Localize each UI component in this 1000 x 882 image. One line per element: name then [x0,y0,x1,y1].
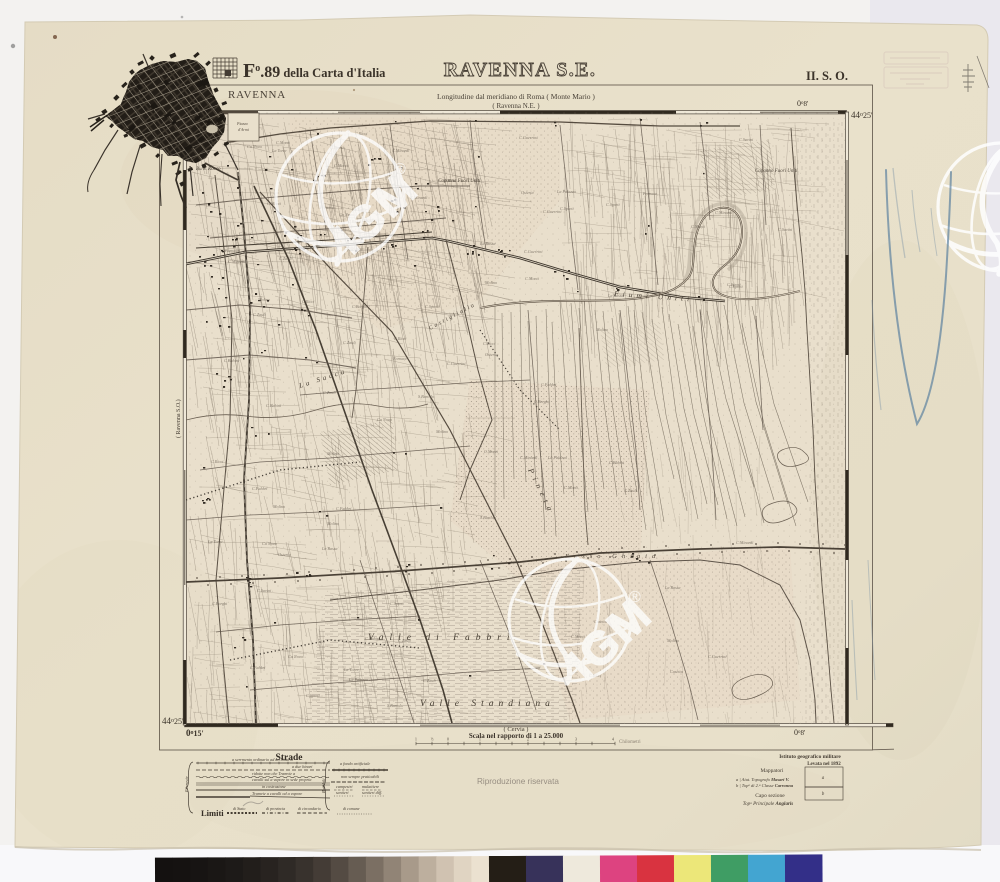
svg-text:Mappatori: Mappatori [761,768,784,774]
svg-text:C.Guerrini: C.Guerrini [708,654,727,659]
svg-text:C.Spreti: C.Spreti [729,284,744,289]
svg-text:di provincia: di provincia [266,806,285,811]
svg-text:Tramvie a cavalli od a vapore: Tramvie a cavalli od a vapore [252,791,302,796]
svg-text:S.Bartolo: S.Bartolo [480,515,496,520]
svg-text:C.Zauli: C.Zauli [253,312,267,317]
svg-text:C.Guerrini: C.Guerrini [524,249,543,254]
svg-text:campestri: campestri [336,784,353,789]
svg-text:C.Monti: C.Monti [525,276,540,281]
svg-text:sentieri diff.: sentieri diff. [362,790,382,795]
svg-text:C.Babini: C.Babini [266,403,282,408]
svg-text:C.Guerrini: C.Guerrini [447,361,466,366]
svg-text:C.Savini: C.Savini [778,227,793,232]
svg-text:C.Zauli: C.Zauli [279,256,293,261]
svg-text:Molino: Molino [272,504,285,509]
svg-text:Osteria: Osteria [278,552,291,557]
svg-text:½: ½ [431,738,434,742]
svg-text:di Stato: di Stato [233,806,245,811]
svg-text:Molino: Molino [484,280,497,285]
svg-text:Osteria: Osteria [485,352,498,357]
svg-text:di circondario: di circondario [298,806,321,811]
svg-text:a due binari: a due binari [292,764,313,769]
svg-text:Ca Nova: Ca Nova [288,654,303,659]
svg-text:C.Zauli: C.Zauli [423,678,437,683]
svg-text:non sempre praticabili: non sempre praticabili [341,774,380,779]
svg-text:Rotabili: Rotabili [321,778,326,794]
svg-text:1: 1 [415,738,417,742]
svg-text:2: 2 [527,738,529,742]
svg-text:Ferrovie: Ferrovie [184,776,189,793]
svg-text:Molino: Molino [326,521,339,526]
svg-text:Istituto geografico milita: Istituto geografico militare [779,754,841,760]
svg-text:C.Ricci: C.Ricci [483,341,496,346]
svg-text:Ca Nova: Ca Nova [377,417,392,422]
svg-text:0o15': 0o15' [186,728,204,738]
svg-text:C.Borghi: C.Borghi [534,399,550,404]
svg-text:Longitudine dal meridiano di R: Longitudine dal meridiano di Roma ( Mont… [437,92,595,101]
svg-text:C.Savini: C.Savini [739,137,754,142]
svg-text:3: 3 [575,738,577,742]
svg-text:Chilometri: Chilometri [619,740,641,745]
svg-text:Capo sezione: Capo sezione [755,793,785,799]
svg-text:Fornace: Fornace [242,250,257,255]
svg-text:4: 4 [612,738,614,742]
svg-text:C.Borghi: C.Borghi [212,601,228,606]
svg-text:1: 1 [479,738,481,742]
svg-text:®: ® [394,161,406,178]
svg-text:La Bassa: La Bassa [479,241,495,246]
svg-text:a fondo artificiale: a fondo artificiale [340,761,370,766]
svg-text:Fornace: Fornace [224,248,239,253]
svg-text:La Palazza: La Palazza [348,677,368,682]
svg-text:C.Fabbri: C.Fabbri [250,665,266,670]
svg-text:C.Minardi: C.Minardi [392,148,410,153]
svg-text:C.Minardi: C.Minardi [715,210,733,215]
svg-text:C.Fabbri: C.Fabbri [252,486,268,491]
svg-text:Limiti: Limiti [201,808,224,818]
svg-text:( Ravenna S.O.): ( Ravenna S.O.) [175,399,182,438]
svg-text:C.Ricci: C.Ricci [211,459,224,464]
svg-text:0: 0 [447,738,449,742]
svg-text:C.Monti: C.Monti [564,485,579,490]
svg-text:C.Babini: C.Babini [224,358,240,363]
svg-text:S.Bartolo: S.Bartolo [387,703,403,708]
svg-text:C.Monti: C.Monti [334,163,349,168]
svg-text:di comune: di comune [343,806,360,811]
svg-text:C.Zauli: C.Zauli [624,488,638,493]
svg-text:Valle Standiana: Valle Standiana [420,699,555,709]
svg-text:C.Monti: C.Monti [484,449,499,454]
svg-text:Valle di Fabbri: Valle di Fabbri [368,633,516,643]
svg-text:La Bassa: La Bassa [664,585,680,590]
svg-text:S.Bartolo: S.Bartolo [418,394,434,399]
svg-text:Osteria: Osteria [521,190,534,195]
svg-text:RAVENNA: RAVENNA [228,89,286,101]
svg-text:C.Minardi: C.Minardi [520,455,538,460]
svg-text:Molino: Molino [435,429,448,434]
svg-text:Molino: Molino [666,638,679,643]
svg-text:cavalli sul a vapore in sede p: cavalli sul a vapore in sede propria [252,777,311,782]
svg-text:b | Topo di 2.a Classe Carron: b | Topo di 2.a Classe Carronna [736,783,794,788]
svg-text:C.Minardi: C.Minardi [736,540,754,545]
svg-text:Ca Nova: Ca Nova [247,144,262,149]
svg-text:Piazza: Piazza [236,121,248,126]
svg-text:0o8': 0o8' [797,99,808,108]
svg-text:( Ravenna N.E. ): ( Ravenna N.E. ) [492,102,540,110]
svg-text:Fornace: Fornace [642,191,657,196]
svg-text:a | Aiut. Topografo Masari: a | Aiut. Topografo Masari V. [736,777,790,782]
svg-text:La Palazza: La Palazza [547,455,567,460]
svg-text:C.Borghi: C.Borghi [352,304,368,309]
svg-text:C.Fabbri: C.Fabbri [336,506,352,511]
svg-text:Molino: Molino [257,297,270,302]
svg-text:C.Monti: C.Monti [267,201,282,206]
svg-text:C.Monti: C.Monti [276,140,291,145]
svg-text:Riproduzione riservata: Riproduzione riservata [477,777,559,786]
svg-text:RAVENNA S.E.: RAVENNA S.E. [444,59,597,81]
svg-text:Molino: Molino [595,327,608,332]
svg-text:Molino: Molino [326,451,339,456]
svg-text:C.Savini: C.Savini [257,588,272,593]
svg-text:C.Ricci: C.Ricci [239,231,252,236]
svg-text:II. S. O.: II. S. O. [806,69,848,83]
svg-text:La Bassa: La Bassa [321,546,337,551]
svg-text:Levata nel 1892: Levata nel 1892 [807,762,841,767]
svg-text:C.Spreti: C.Spreti [560,206,575,211]
svg-text:Ca Nova: Ca Nova [262,541,277,546]
svg-text:a serrmento ordinario ad un bi: a serrmento ordinario ad un binario [232,757,293,762]
svg-text:La Torre: La Torre [207,539,223,544]
svg-text:C.Minardi: C.Minardi [228,259,246,264]
svg-text:C.Spreti: C.Spreti [390,601,405,606]
svg-text:d'Armi: d'Armi [238,127,249,132]
svg-text:mulattiere: mulattiere [362,784,379,789]
svg-text:Casetta: Casetta [670,669,683,674]
svg-text:La Torre: La Torre [271,148,287,153]
svg-text:Capanno Fuori Uniti: Capanno Fuori Uniti [755,169,798,174]
svg-text:C.Zauli: C.Zauli [343,340,357,345]
svg-text:Capanna Fuori Uniti: Capanna Fuori Uniti [438,179,481,184]
svg-text:C.Babini: C.Babini [609,460,625,465]
svg-text:®: ® [629,589,641,606]
svg-text:Scala nel rapporto di 1 a 25.0: Scala nel rapporto di 1 a 25.000 [469,732,564,740]
svg-text:C.Monti: C.Monti [691,224,706,229]
svg-text:C.Spreti: C.Spreti [306,693,321,698]
svg-text:C.Spreti: C.Spreti [606,202,621,207]
svg-text:sentieri: sentieri [336,790,349,795]
svg-text:C.Fabbri: C.Fabbri [541,382,557,387]
svg-text:ridotte non che Tramvie a: ridotte non che Tramvie a [252,771,295,776]
svg-text:C.Zauli: C.Zauli [323,390,337,395]
svg-text:0o8': 0o8' [794,728,805,737]
svg-text:La Palazza: La Palazza [556,189,576,194]
svg-text:in costruzione: in costruzione [262,784,286,789]
svg-text:C.Spreti: C.Spreti [425,304,440,309]
svg-text:C.Ricci: C.Ricci [302,299,315,304]
svg-text:C.Guerrini: C.Guerrini [519,135,538,140]
svg-text:La Torre: La Torre [343,667,359,672]
svg-text:C.Ricci: C.Ricci [394,336,407,341]
svg-text:Fornace: Fornace [392,356,407,361]
